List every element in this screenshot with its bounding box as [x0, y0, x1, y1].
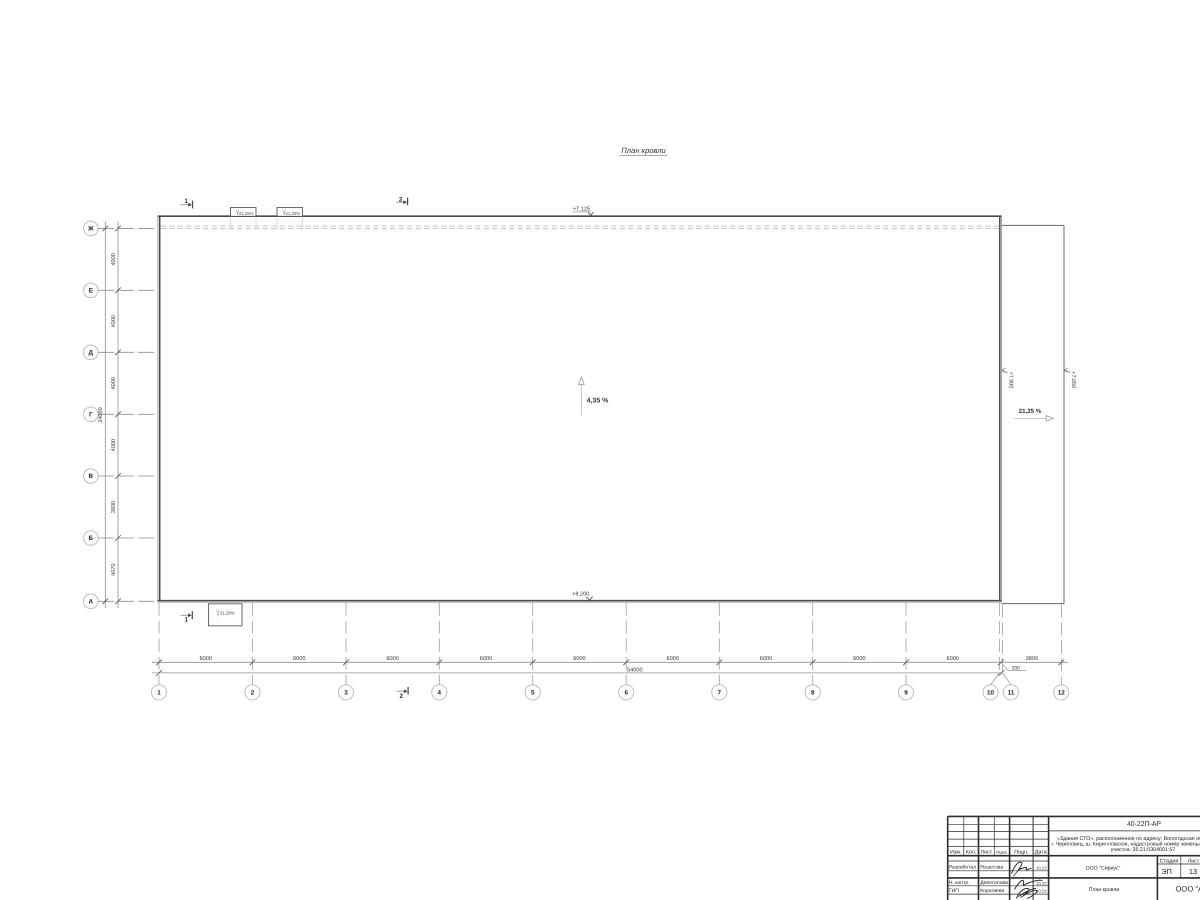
svg-text:ООО "Архитектура": ООО "Архитектура": [1176, 885, 1200, 894]
svg-text:Дата: Дата: [1035, 850, 1047, 856]
svg-text:40-22П-АР: 40-22П-АР: [1127, 821, 1161, 828]
svg-text:4: 4: [438, 690, 442, 697]
svg-text:3: 3: [344, 690, 348, 697]
svg-text:1: 1: [185, 616, 189, 623]
svg-text:6: 6: [624, 690, 628, 697]
svg-text:21,29%: 21,29%: [239, 211, 254, 216]
svg-text:4,35 %: 4,35 %: [587, 398, 610, 405]
svg-text:6000: 6000: [293, 656, 305, 662]
svg-text:54000: 54000: [627, 667, 643, 673]
svg-text:1: 1: [184, 198, 188, 205]
svg-text:+7.125: +7.125: [573, 206, 590, 212]
svg-text:2: 2: [400, 693, 404, 700]
svg-text:6000: 6000: [946, 656, 958, 662]
svg-text:Решетова: Решетова: [980, 865, 1003, 871]
svg-text:6000: 6000: [573, 656, 585, 662]
svg-text:Стадия: Стадия: [1160, 859, 1179, 865]
svg-text:+7.050: +7.050: [1070, 371, 1076, 388]
svg-text:200: 200: [1012, 666, 1021, 672]
svg-text:5: 5: [531, 690, 535, 697]
svg-text:2: 2: [251, 690, 255, 697]
svg-text:План кровли: План кровли: [621, 146, 666, 155]
svg-text:№док.: №док.: [996, 849, 1008, 854]
svg-text:21,29%: 21,29%: [220, 610, 235, 615]
svg-text:Подп.: Подп.: [1014, 850, 1028, 856]
svg-text:В: В: [89, 473, 94, 480]
svg-text:12: 12: [1058, 690, 1066, 697]
svg-text:6000: 6000: [480, 656, 492, 662]
svg-text:А: А: [89, 599, 94, 606]
svg-text:Б: Б: [89, 535, 94, 542]
svg-text:Ж: Ж: [87, 226, 94, 233]
svg-text:4000: 4000: [111, 439, 117, 451]
svg-text:3930: 3930: [111, 501, 117, 513]
svg-text:1: 1: [157, 690, 161, 697]
svg-text:10.22: 10.22: [1036, 889, 1047, 894]
svg-text:Г: Г: [89, 412, 93, 419]
svg-text:6000: 6000: [386, 656, 398, 662]
svg-text:6000: 6000: [853, 656, 865, 662]
svg-text:6000: 6000: [760, 656, 772, 662]
svg-text:11: 11: [1008, 690, 1015, 697]
svg-text:3800: 3800: [1026, 656, 1038, 662]
svg-text:10.22: 10.22: [1036, 865, 1047, 870]
svg-text:+8.200: +8.200: [572, 591, 589, 597]
svg-text:участка: 35:21:0304001:57: участка: 35:21:0304001:57: [1111, 847, 1176, 853]
svg-text:4000: 4000: [111, 377, 117, 389]
svg-text:24000: 24000: [98, 407, 104, 423]
svg-text:Лист: Лист: [981, 850, 993, 856]
svg-text:Изм.: Изм.: [950, 850, 961, 856]
svg-text:6000: 6000: [667, 656, 679, 662]
svg-text:Девятилова: Девятилова: [980, 880, 1008, 886]
svg-text:Разработал: Разработал: [949, 865, 976, 871]
svg-text:8: 8: [811, 690, 815, 697]
svg-text:+7.900: +7.900: [1008, 372, 1014, 389]
svg-text:21,29%: 21,29%: [286, 211, 301, 216]
svg-text:4000: 4000: [111, 253, 117, 265]
svg-text:Е: Е: [89, 288, 93, 295]
svg-text:Н. контр.: Н. контр.: [949, 880, 970, 886]
svg-text:Д: Д: [89, 350, 94, 357]
svg-text:10: 10: [987, 690, 995, 697]
svg-text:Корогаева: Корогаева: [980, 888, 1004, 894]
svg-text:6000: 6000: [200, 656, 212, 662]
svg-text:13: 13: [1189, 867, 1197, 876]
svg-text:7: 7: [718, 690, 722, 697]
svg-text:9: 9: [904, 690, 908, 697]
svg-text:10.22: 10.22: [1036, 881, 1047, 886]
svg-text:Лист: Лист: [1188, 859, 1200, 865]
svg-text:План кровли: План кровли: [1089, 887, 1120, 893]
svg-text:ГИП: ГИП: [949, 888, 959, 894]
svg-text:21,25 %: 21,25 %: [1019, 408, 1042, 415]
svg-text:ООО "Сириус": ООО "Сириус": [1086, 865, 1121, 871]
svg-text:Кол.: Кол.: [966, 850, 976, 856]
svg-text:4070: 4070: [111, 563, 117, 575]
svg-text:4000: 4000: [111, 315, 117, 327]
svg-text:ЭП: ЭП: [1161, 867, 1172, 876]
